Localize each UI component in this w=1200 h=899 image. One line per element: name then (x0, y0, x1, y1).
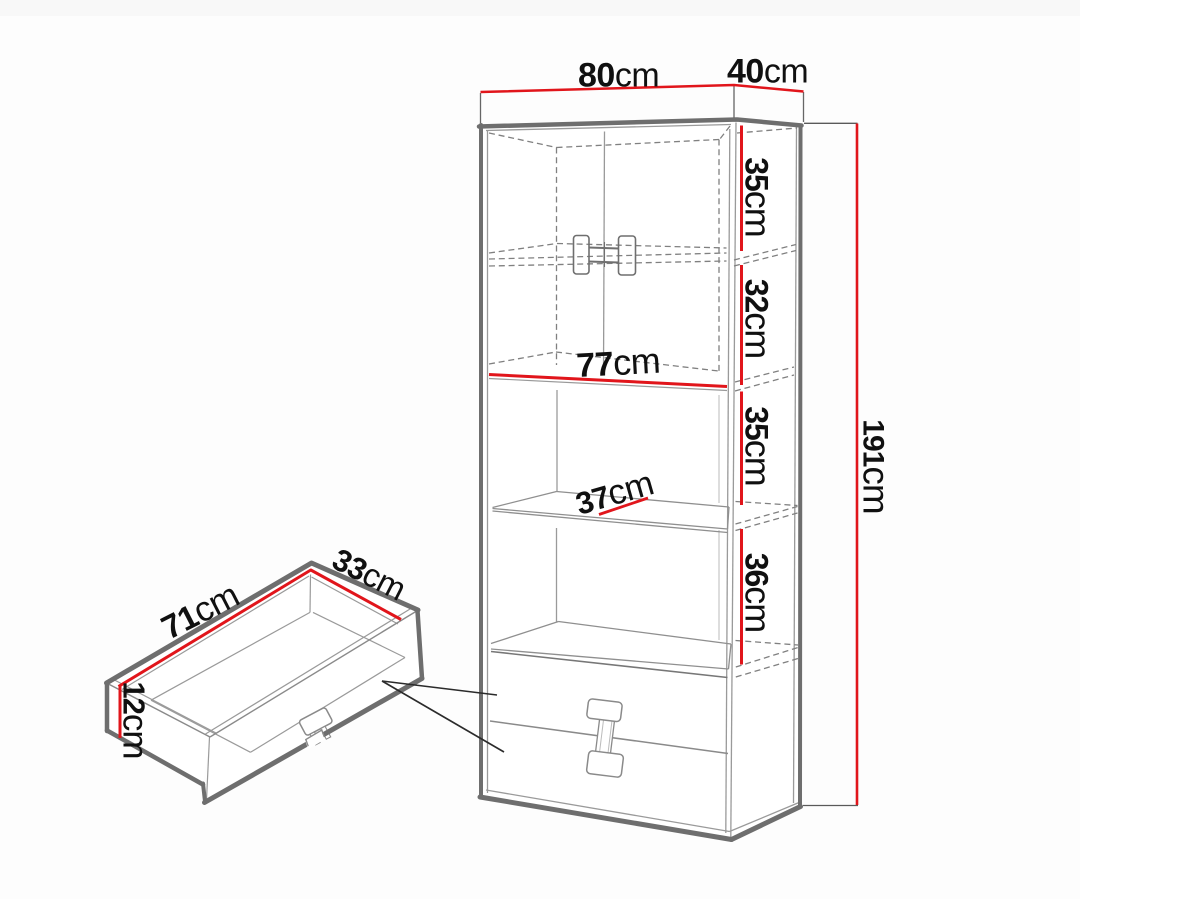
svg-text:191cm: 191cm (856, 419, 897, 513)
svg-text:35cm: 35cm (738, 406, 779, 486)
svg-text:36cm: 36cm (738, 553, 779, 633)
svg-text:40cm: 40cm (727, 53, 808, 91)
svg-text:80cm: 80cm (578, 57, 659, 95)
svg-text:32cm: 32cm (738, 279, 779, 359)
svg-text:77cm: 77cm (575, 340, 661, 385)
svg-text:35cm: 35cm (738, 157, 779, 237)
svg-text:12cm: 12cm (116, 681, 155, 758)
